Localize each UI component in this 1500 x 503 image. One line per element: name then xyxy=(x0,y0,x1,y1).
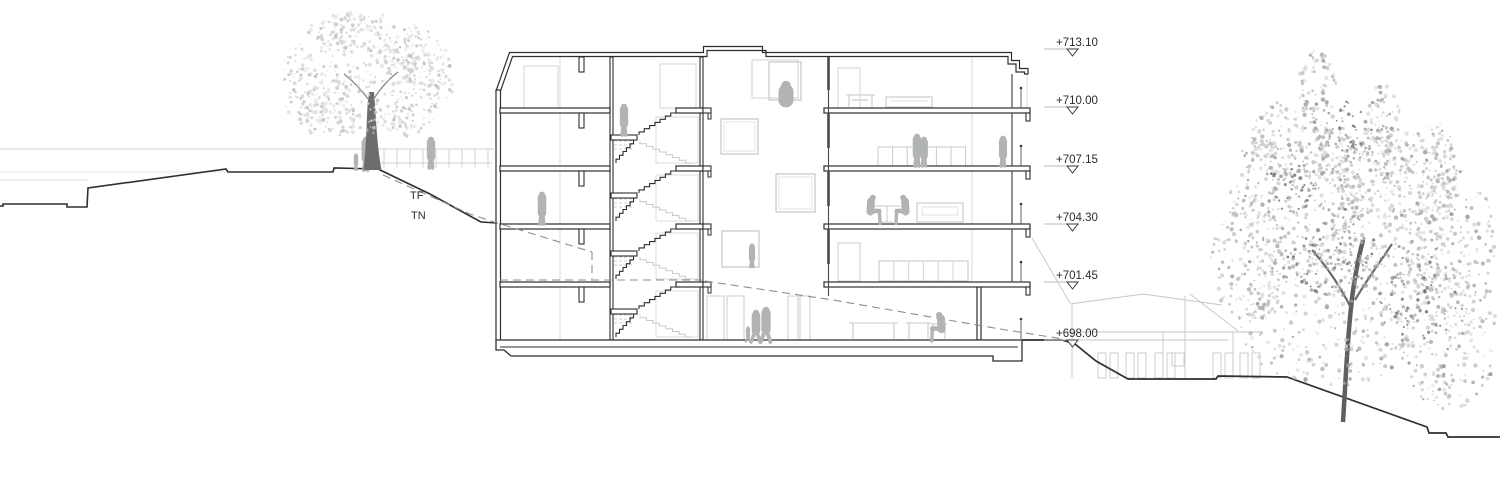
floor-slab xyxy=(500,108,610,113)
floor-slab xyxy=(676,224,703,229)
facade-lines xyxy=(829,57,1013,296)
glass-door xyxy=(707,296,724,341)
ceiling-stub-wall xyxy=(579,171,584,186)
partition-stub-walls xyxy=(579,57,584,302)
house-window xyxy=(1213,353,1221,378)
ceiling-stub-wall xyxy=(579,229,584,244)
person-figure xyxy=(751,310,760,342)
tree-trunk xyxy=(1343,240,1363,422)
stair-flight xyxy=(639,171,676,193)
elevation-marker: +713.10 xyxy=(1044,37,1098,56)
floor-slab xyxy=(676,282,703,287)
balcony-railing-posts xyxy=(1020,87,1023,339)
person-figure xyxy=(896,195,906,223)
stair-flight xyxy=(639,113,676,135)
person-figure xyxy=(932,312,943,341)
far-stair-flight xyxy=(640,141,692,163)
railing-handrail-dot xyxy=(1020,145,1023,148)
elevation-label: +707.15 xyxy=(1056,154,1098,166)
interior-background-elements xyxy=(524,57,1027,341)
stair-flight xyxy=(639,229,676,251)
sofa xyxy=(917,203,963,222)
house-window xyxy=(1155,353,1163,378)
floor-slab xyxy=(676,166,703,171)
tn-label: TN xyxy=(411,210,426,222)
far-stair-flight xyxy=(640,257,692,279)
tree-foliage xyxy=(1210,50,1497,410)
person-figure xyxy=(870,195,880,223)
floor-slabs xyxy=(500,108,1030,295)
left-site-background-lines xyxy=(0,149,494,180)
stair-shaft-back xyxy=(656,175,698,221)
house-windows xyxy=(1098,353,1260,378)
stair-landing xyxy=(611,135,637,140)
elevation-label: +704.30 xyxy=(1056,212,1098,224)
level-triangle-icon xyxy=(1067,166,1078,173)
elevation-label: +713.10 xyxy=(1056,37,1098,49)
level-triangle-icon xyxy=(1067,224,1078,231)
exterior-wall-left xyxy=(496,90,501,341)
floor-slab xyxy=(824,166,1030,171)
stair-shaft-back xyxy=(656,117,698,163)
natural-terrain-dashed xyxy=(383,175,1063,339)
slab-nib xyxy=(703,166,711,171)
neighbor-house-elevation xyxy=(1032,238,1262,378)
house-window xyxy=(1172,353,1184,366)
slab-nib xyxy=(708,229,711,235)
level-triangle-icon xyxy=(1067,107,1078,114)
slab-nib xyxy=(708,113,711,119)
house-window xyxy=(1110,353,1118,378)
building-section-drawing: TF TN +713.10+710.00+707.15+704.30+701.4… xyxy=(0,0,1500,503)
stair-flight xyxy=(616,314,637,337)
stair-landing xyxy=(611,251,637,256)
glass-door xyxy=(800,296,810,341)
stair-flight xyxy=(616,256,637,279)
stair-flight xyxy=(639,287,676,309)
house-window xyxy=(1126,353,1134,378)
floor-slab xyxy=(500,282,610,287)
atrium-window xyxy=(776,174,815,212)
far-stair-flight xyxy=(640,199,692,221)
kitchen-counter xyxy=(879,261,968,281)
level-triangle-icon xyxy=(1067,49,1078,56)
ceiling-stub-wall xyxy=(579,57,584,72)
right-tree-group xyxy=(1210,50,1497,422)
balcony-edge xyxy=(1026,229,1030,237)
elevation-marker: +704.30 xyxy=(1044,212,1098,231)
elevation-label: +701.45 xyxy=(1056,270,1098,282)
slab-nib xyxy=(703,282,711,287)
far-stair-flight xyxy=(640,315,692,337)
tf-label: TF xyxy=(410,190,424,202)
ground-floor-wall xyxy=(977,287,981,340)
atrium-wall xyxy=(700,57,703,340)
house-window xyxy=(1225,353,1233,378)
house-window xyxy=(1167,353,1175,378)
railing-handrail-dot xyxy=(1020,203,1023,206)
elevation-marker: +698.00 xyxy=(1044,328,1228,347)
slab-nib xyxy=(708,171,711,177)
balcony-edge xyxy=(1026,171,1030,179)
railing-handrail-dot xyxy=(1020,318,1023,321)
stair-flight xyxy=(616,198,637,221)
house-window xyxy=(1240,353,1248,378)
floor-slab xyxy=(824,282,1030,287)
person-figure xyxy=(914,134,920,166)
human-figures xyxy=(354,81,1006,342)
ceiling-stub-wall xyxy=(579,287,584,302)
slab-nib xyxy=(703,108,711,113)
roof-slab xyxy=(496,47,1028,93)
floor-slab xyxy=(500,224,610,229)
stair-shaft-back xyxy=(656,233,698,279)
sofa xyxy=(886,97,932,107)
cabinet xyxy=(838,243,860,281)
person-figure xyxy=(1000,136,1006,166)
floor-slab xyxy=(824,108,1030,113)
house-window xyxy=(1138,353,1146,378)
person-figure xyxy=(428,137,434,168)
elevation-label: +710.00 xyxy=(1056,95,1098,107)
person-figure xyxy=(921,137,927,166)
stair-flight xyxy=(616,140,637,163)
person-figure xyxy=(539,192,545,224)
elevation-label: +698.00 xyxy=(1056,328,1098,340)
level-triangle-icon xyxy=(1067,282,1078,289)
ceiling-stub-wall xyxy=(579,113,584,128)
person-figure xyxy=(750,243,755,267)
slab-nib xyxy=(703,224,711,229)
person-figure xyxy=(621,104,627,135)
person-figure xyxy=(781,81,791,100)
glass-door xyxy=(788,296,798,341)
floor-slab xyxy=(500,166,610,171)
floor-slab xyxy=(676,108,703,113)
stair-shaft-back xyxy=(656,291,698,337)
balcony-edge xyxy=(1026,113,1030,121)
stair-landing xyxy=(611,309,637,314)
person-figure xyxy=(761,307,771,342)
glass-door xyxy=(727,296,744,341)
terrain-profile xyxy=(0,168,1500,437)
elevation-marker: +707.15 xyxy=(1044,154,1098,173)
stair-cut-flights xyxy=(611,113,676,337)
atrium-window xyxy=(721,119,758,154)
railing-handrail-dot xyxy=(1020,261,1023,264)
stair-landing xyxy=(611,193,637,198)
elevation-marker: +710.00 xyxy=(1044,95,1098,114)
section-drawing-canvas: TF TN +713.10+710.00+707.15+704.30+701.4… xyxy=(0,0,1500,503)
railing-handrail-dot xyxy=(1020,87,1023,90)
balcony-edge xyxy=(1026,287,1030,295)
person-figure xyxy=(354,153,357,170)
floor-slab xyxy=(824,224,1030,229)
terrace-railing xyxy=(384,149,488,168)
slab-nib xyxy=(708,287,711,293)
elevation-markers: +713.10+710.00+707.15+704.30+701.45+698.… xyxy=(1044,37,1228,347)
